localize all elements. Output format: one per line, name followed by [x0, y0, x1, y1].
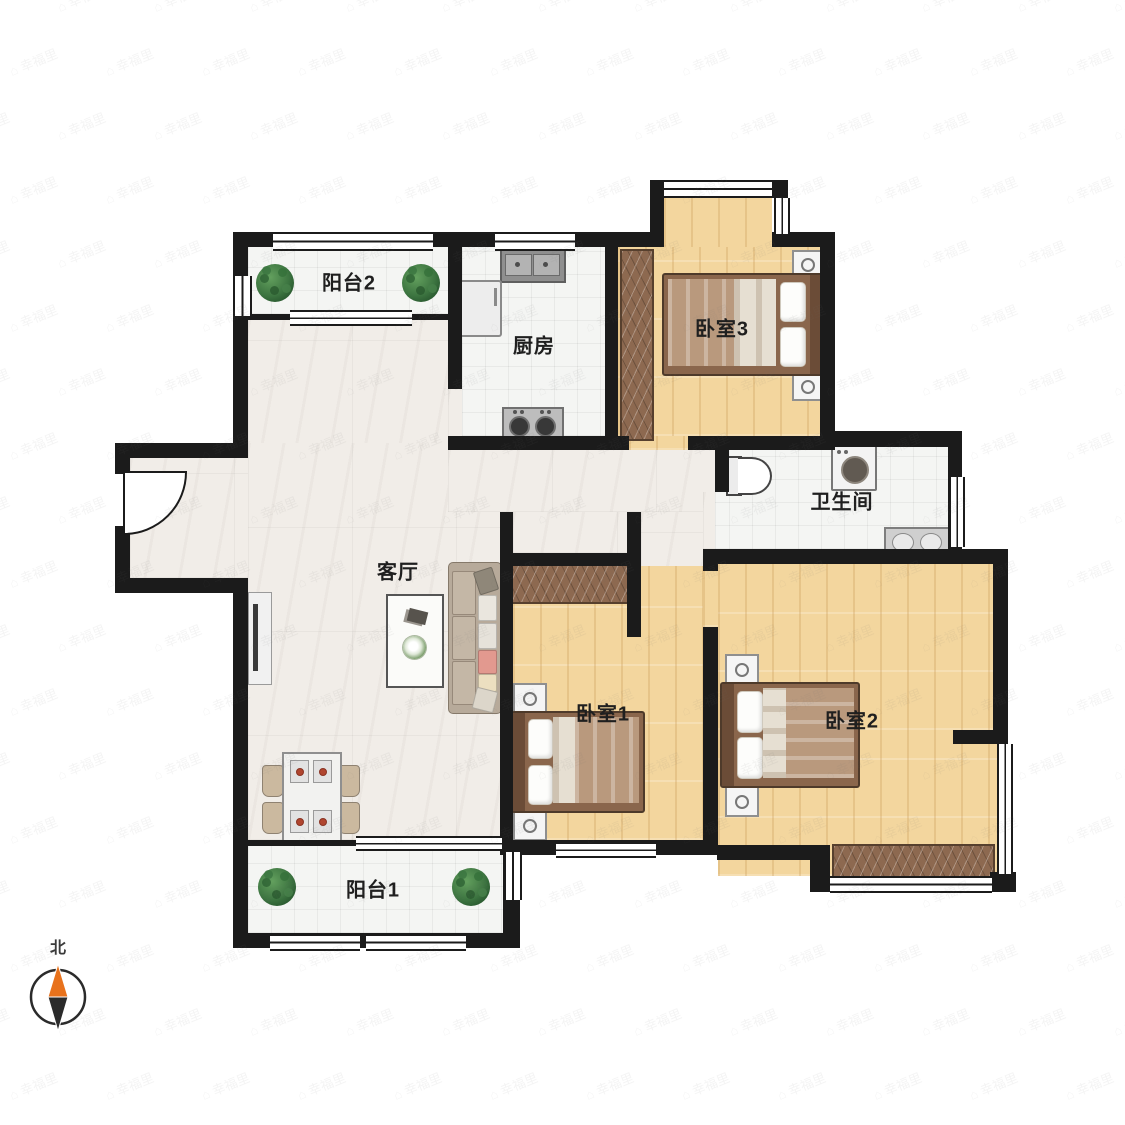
watermark-item: ⌂ 幸福里	[102, 1067, 156, 1104]
tv-screen	[253, 604, 258, 671]
compass-needle-icon	[22, 958, 94, 1036]
kitchen-sink	[500, 249, 566, 283]
toilet-bowl	[738, 457, 772, 495]
washer-button	[837, 450, 841, 454]
watermark-item: ⌂ 幸福里	[246, 0, 300, 16]
wall-segment	[703, 549, 718, 571]
watermark-item: ⌂ 幸福里	[102, 171, 156, 208]
sofa-pillow	[478, 623, 497, 649]
watermark-item: ⌂ 幸福里	[918, 363, 972, 400]
place-setting	[313, 810, 332, 833]
watermark-item: ⌂ 幸福里	[918, 235, 972, 272]
window	[504, 852, 522, 900]
watermark-item: ⌂ 幸福里	[1062, 811, 1116, 848]
room-label-kitchen: 厨房	[513, 330, 555, 359]
watermark-item: ⌂ 幸福里	[630, 107, 684, 144]
bed-pillow	[737, 737, 763, 779]
watermark-item: ⌂ 幸福里	[630, 875, 684, 912]
wall-segment	[820, 232, 835, 448]
window	[949, 477, 965, 547]
watermark-item: ⌂ 幸福里	[150, 363, 204, 400]
watermark-item: ⌂ 幸福里	[966, 43, 1020, 80]
sofa-pillow	[473, 566, 499, 595]
washer-drum	[841, 456, 869, 484]
window	[556, 842, 656, 858]
watermark-item: ⌂ 幸福里	[870, 939, 924, 976]
watermark-item: ⌂ 幸福里	[438, 0, 492, 16]
watermark-item: ⌂ 幸福里	[102, 939, 156, 976]
wall-segment	[688, 436, 835, 450]
compass-north-label: 北	[50, 934, 66, 958]
nightstand	[513, 683, 547, 714]
bed-headboard	[513, 713, 525, 811]
bed-headboard	[722, 684, 734, 786]
watermark-item: ⌂ 幸福里	[246, 107, 300, 144]
stove-burner	[509, 416, 530, 437]
wardrobe-bedroom-1	[507, 562, 632, 604]
watermark-item: ⌂ 幸福里	[6, 1067, 60, 1104]
bed-pillow	[780, 327, 806, 367]
window-slider	[290, 310, 412, 326]
watermark-item: ⌂ 幸福里	[486, 1067, 540, 1104]
watermark-item: ⌂ 幸福里	[1110, 1003, 1125, 1040]
window	[664, 180, 772, 198]
watermark-item: ⌂ 幸福里	[1110, 363, 1125, 400]
plant-icon	[256, 264, 294, 302]
wall-segment	[717, 845, 817, 860]
wall-segment	[953, 730, 1008, 744]
floor-bedroom-2-door-gap	[703, 571, 718, 627]
watermark-item: ⌂ 幸福里	[1062, 299, 1116, 336]
watermark-item: ⌂ 幸福里	[6, 43, 60, 80]
room-label-bathroom: 卫生间	[811, 486, 874, 515]
room-label-balcony-1: 阳台1	[346, 874, 400, 903]
window	[270, 934, 360, 951]
wall-segment	[605, 436, 629, 450]
window	[273, 232, 433, 251]
watermark-item: ⌂ 幸福里	[582, 939, 636, 976]
watermark-item: ⌂ 幸福里	[246, 1003, 300, 1040]
watermark-item: ⌂ 幸福里	[966, 171, 1020, 208]
watermark-item: ⌂ 幸福里	[1062, 1067, 1116, 1104]
table-book	[407, 608, 429, 625]
watermark-item: ⌂ 幸福里	[150, 235, 204, 272]
watermark-item: ⌂ 幸福里	[150, 0, 204, 16]
watermark-item: ⌂ 幸福里	[0, 619, 12, 656]
nightstand	[513, 810, 547, 841]
window	[830, 876, 992, 893]
bed-pillow	[737, 691, 763, 733]
plant-icon	[452, 868, 490, 906]
floor-bedroom-3-bay	[664, 193, 772, 249]
watermark-item: ⌂ 幸福里	[0, 491, 12, 528]
wall-segment	[715, 549, 1007, 564]
window-slider	[356, 836, 502, 851]
watermark-item: ⌂ 幸福里	[54, 0, 108, 16]
watermark-item: ⌂ 幸福里	[6, 171, 60, 208]
watermark-item: ⌂ 幸福里	[54, 747, 108, 784]
watermark-item: ⌂ 幸福里	[822, 1003, 876, 1040]
watermark-item: ⌂ 幸福里	[1014, 0, 1068, 16]
wall-segment	[448, 232, 462, 389]
bed-blanket	[575, 717, 639, 803]
watermark-item: ⌂ 幸福里	[150, 747, 204, 784]
watermark-item: ⌂ 幸福里	[822, 0, 876, 16]
bed-pillow	[528, 719, 553, 759]
wall-segment	[233, 593, 248, 847]
window	[495, 232, 575, 251]
watermark-item: ⌂ 幸福里	[0, 235, 12, 272]
floor-living-under-balcony2	[248, 320, 448, 445]
room-label-living-room: 客厅	[377, 556, 419, 585]
watermark-item: ⌂ 幸福里	[294, 171, 348, 208]
entry-door-icon	[112, 462, 200, 540]
watermark-item: ⌂ 幸福里	[822, 107, 876, 144]
watermark-item: ⌂ 幸福里	[534, 1003, 588, 1040]
plant-icon	[402, 264, 440, 302]
floor-living-nook	[513, 512, 627, 553]
watermark-item: ⌂ 幸福里	[726, 1003, 780, 1040]
watermark-item: ⌂ 幸福里	[966, 299, 1020, 336]
watermark-item: ⌂ 幸福里	[0, 1003, 12, 1040]
watermark-item: ⌂ 幸福里	[1014, 491, 1068, 528]
watermark-item: ⌂ 幸福里	[1062, 171, 1116, 208]
dining-chair	[262, 765, 284, 797]
watermark-item: ⌂ 幸福里	[294, 43, 348, 80]
watermark-item: ⌂ 幸福里	[6, 427, 60, 464]
wall-segment	[115, 443, 248, 458]
coffee-table	[386, 594, 444, 688]
window	[997, 744, 1013, 874]
watermark-item: ⌂ 幸福里	[102, 299, 156, 336]
watermark-item: ⌂ 幸福里	[6, 299, 60, 336]
bed-pillow	[780, 282, 806, 322]
watermark-item: ⌂ 幸福里	[918, 107, 972, 144]
watermark-item: ⌂ 幸福里	[1062, 43, 1116, 80]
watermark-item: ⌂ 幸福里	[1110, 235, 1125, 272]
watermark-item: ⌂ 幸福里	[870, 43, 924, 80]
wall-segment	[703, 627, 718, 847]
stove-knob	[540, 410, 544, 414]
sofa-seat	[452, 661, 476, 705]
dining-chair	[262, 802, 284, 834]
watermark-item: ⌂ 幸福里	[534, 107, 588, 144]
sofa-seat	[452, 616, 476, 660]
watermark-item: ⌂ 幸福里	[6, 811, 60, 848]
toilet	[726, 455, 772, 493]
fridge-handle	[494, 288, 497, 306]
watermark-item: ⌂ 幸福里	[774, 1067, 828, 1104]
watermark-item: ⌂ 幸福里	[1062, 427, 1116, 464]
room-label-bedroom-1: 卧室1	[576, 698, 630, 727]
watermark-item: ⌂ 幸福里	[6, 683, 60, 720]
watermark-item: ⌂ 幸福里	[1110, 491, 1125, 528]
watermark-item: ⌂ 幸福里	[54, 235, 108, 272]
wall-segment	[115, 578, 248, 593]
place-setting	[313, 760, 332, 783]
wall-segment	[715, 447, 729, 492]
stove-burner	[535, 416, 556, 437]
sofa	[448, 562, 502, 714]
watermark-item: ⌂ 幸福里	[1110, 0, 1125, 16]
bed-bedroom-2	[720, 682, 860, 788]
watermark-item: ⌂ 幸福里	[390, 43, 444, 80]
watermark-item: ⌂ 幸福里	[486, 43, 540, 80]
watermark-item: ⌂ 幸福里	[294, 1067, 348, 1104]
watermark-item: ⌂ 幸福里	[1110, 875, 1125, 912]
floor-hall-bath-strip	[703, 492, 715, 549]
watermark-item: ⌂ 幸福里	[1110, 747, 1125, 784]
watermark-item: ⌂ 幸福里	[582, 43, 636, 80]
watermark-item: ⌂ 幸福里	[0, 875, 12, 912]
watermark-item: ⌂ 幸福里	[1014, 875, 1068, 912]
watermark-item: ⌂ 幸福里	[582, 1067, 636, 1104]
place-setting	[290, 760, 309, 783]
watermark-item: ⌂ 幸福里	[1014, 1003, 1068, 1040]
watermark-item: ⌂ 幸福里	[342, 0, 396, 16]
watermark-item: ⌂ 幸福里	[438, 1003, 492, 1040]
fridge	[458, 280, 502, 337]
place-setting	[290, 810, 309, 833]
watermark-item: ⌂ 幸福里	[726, 875, 780, 912]
nightstand	[725, 786, 759, 817]
watermark-item: ⌂ 幸福里	[966, 427, 1020, 464]
watermark-item: ⌂ 幸福里	[678, 1067, 732, 1104]
watermark-item: ⌂ 幸福里	[774, 939, 828, 976]
wall-segment	[772, 180, 788, 198]
watermark-item: ⌂ 幸福里	[630, 0, 684, 16]
room-label-balcony-2: 阳台2	[322, 267, 376, 296]
window	[774, 198, 790, 234]
wall-segment	[500, 553, 640, 566]
watermark-item: ⌂ 幸福里	[582, 171, 636, 208]
watermark-item: ⌂ 幸福里	[726, 107, 780, 144]
watermark-item: ⌂ 幸福里	[54, 363, 108, 400]
watermark-item: ⌂ 幸福里	[726, 0, 780, 16]
watermark-item: ⌂ 幸福里	[0, 363, 12, 400]
plant-icon	[258, 868, 296, 906]
wall-segment	[990, 872, 1016, 892]
wall-segment	[835, 431, 962, 447]
watermark-item: ⌂ 幸福里	[870, 1067, 924, 1104]
sofa-pillow	[478, 595, 497, 621]
watermark-item: ⌂ 幸福里	[630, 1003, 684, 1040]
watermark-item: ⌂ 幸福里	[150, 875, 204, 912]
watermark-item: ⌂ 幸福里	[774, 43, 828, 80]
bed-pillow	[528, 765, 553, 805]
window	[366, 934, 466, 951]
watermark-item: ⌂ 幸福里	[1014, 619, 1068, 656]
wall-segment	[993, 549, 1008, 742]
sofa-seat	[452, 571, 476, 615]
watermark-item: ⌂ 幸福里	[0, 107, 12, 144]
tv-cabinet	[248, 592, 272, 685]
watermark-item: ⌂ 幸福里	[534, 875, 588, 912]
watermark-item: ⌂ 幸福里	[678, 43, 732, 80]
watermark-item: ⌂ 幸福里	[54, 619, 108, 656]
watermark-item: ⌂ 幸福里	[1110, 619, 1125, 656]
watermark-item: ⌂ 幸福里	[150, 107, 204, 144]
compass: 北	[22, 938, 94, 1038]
watermark-item: ⌂ 幸福里	[54, 107, 108, 144]
watermark-item: ⌂ 幸福里	[1062, 555, 1116, 592]
watermark-item: ⌂ 幸福里	[966, 939, 1020, 976]
watermark-item: ⌂ 幸福里	[1014, 235, 1068, 272]
wardrobe-bedroom-2	[832, 844, 995, 880]
watermark-item: ⌂ 幸福里	[198, 171, 252, 208]
watermark-item: ⌂ 幸福里	[1062, 939, 1116, 976]
watermark-item: ⌂ 幸福里	[870, 171, 924, 208]
watermark-item: ⌂ 幸福里	[0, 0, 12, 16]
watermark-item: ⌂ 幸福里	[198, 43, 252, 80]
dining-table	[282, 752, 342, 844]
watermark-item: ⌂ 幸福里	[918, 0, 972, 16]
watermark-item: ⌂ 幸福里	[0, 747, 12, 784]
sofa-pillow	[472, 687, 499, 714]
wall-segment	[650, 180, 664, 247]
wardrobe-bedroom-3	[620, 249, 654, 441]
table-plant	[403, 636, 426, 659]
watermark-item: ⌂ 幸福里	[54, 491, 108, 528]
wall-segment	[627, 512, 641, 637]
sink-drain	[515, 262, 520, 267]
room-label-bedroom-2: 卧室2	[825, 705, 879, 734]
watermark-item: ⌂ 幸福里	[390, 171, 444, 208]
watermark-item: ⌂ 幸福里	[390, 1067, 444, 1104]
watermark-item: ⌂ 幸福里	[870, 299, 924, 336]
window	[233, 276, 252, 316]
watermark-item: ⌂ 幸福里	[150, 619, 204, 656]
watermark-item: ⌂ 幸福里	[486, 171, 540, 208]
watermark-item: ⌂ 幸福里	[1014, 363, 1068, 400]
watermark-item: ⌂ 幸福里	[1014, 107, 1068, 144]
wall-segment	[448, 436, 618, 450]
stove-knob	[520, 410, 524, 414]
watermark-item: ⌂ 幸福里	[438, 107, 492, 144]
watermark-item: ⌂ 幸福里	[678, 939, 732, 976]
stove-knob	[513, 410, 517, 414]
floor-living-right	[448, 450, 715, 512]
stove-knob	[547, 410, 551, 414]
watermark-item: ⌂ 幸福里	[342, 107, 396, 144]
watermark-item: ⌂ 幸福里	[1110, 107, 1125, 144]
nightstand	[725, 654, 759, 685]
washing-machine	[831, 445, 877, 491]
watermark-item: ⌂ 幸福里	[102, 43, 156, 80]
watermark-item: ⌂ 幸福里	[102, 811, 156, 848]
floor-bathroom-door	[715, 492, 729, 549]
watermark-item: ⌂ 幸福里	[150, 1003, 204, 1040]
watermark-item: ⌂ 幸福里	[6, 555, 60, 592]
floor-plan: 阳台2 厨房 卧室3 卫生间 客厅 卧室1 卧室2 阳台1 北 ⌂ 幸福里⌂ 幸…	[0, 0, 1125, 1125]
watermark-item: ⌂ 幸福里	[342, 1003, 396, 1040]
watermark-item: ⌂ 幸福里	[1062, 683, 1116, 720]
watermark-item: ⌂ 幸福里	[966, 1067, 1020, 1104]
watermark-item: ⌂ 幸福里	[198, 1067, 252, 1104]
room-label-bedroom-3: 卧室3	[695, 313, 749, 342]
wall-segment	[605, 247, 618, 438]
sofa-pillow	[478, 650, 497, 674]
washer-button	[844, 450, 848, 454]
watermark-item: ⌂ 幸福里	[54, 875, 108, 912]
watermark-item: ⌂ 幸福里	[1014, 747, 1068, 784]
watermark-item: ⌂ 幸福里	[918, 1003, 972, 1040]
watermark-item: ⌂ 幸福里	[534, 0, 588, 16]
watermark-item: ⌂ 幸福里	[102, 683, 156, 720]
sink-drain	[543, 262, 548, 267]
